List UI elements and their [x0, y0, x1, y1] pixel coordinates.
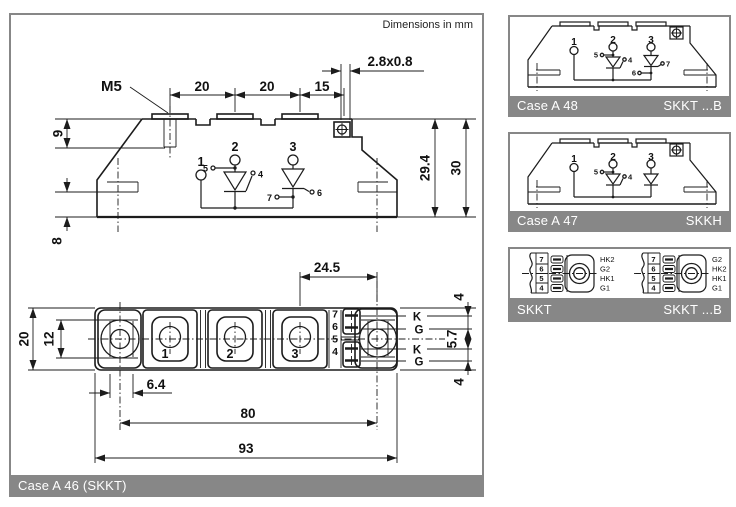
pinout-caption-right: SKKT ...B [663, 302, 722, 317]
pin-5-node [211, 166, 215, 170]
right-mount-hole-outer [360, 320, 397, 357]
dim-12: 12 [42, 331, 57, 346]
module-right-side [352, 119, 397, 217]
pin-4: 4 [651, 284, 656, 293]
label-g1: G1 [600, 284, 610, 293]
module-top-edge [142, 119, 352, 125]
thyristor-2 [282, 169, 304, 187]
terminal-2-node [609, 43, 617, 51]
dim-8: 8 [50, 237, 65, 245]
dim-20a: 20 [194, 79, 209, 94]
dim-20b: 20 [259, 79, 274, 94]
terminal-3-label: 3 [290, 140, 297, 154]
a47-caption-bar: Case A 47 SKKH [510, 211, 729, 230]
module-left-chamfer [97, 119, 142, 217]
circuit-diagram: 1 2 5 4 3 [196, 140, 322, 210]
pin-6-label: 6 [632, 69, 636, 78]
terminal-3-node [647, 43, 655, 51]
dim-245: 24.5 [314, 260, 341, 275]
pin-7-label: 7 [267, 193, 272, 203]
dim-tab: 2.8x0.8 [367, 54, 413, 69]
dim-4a: 4 [452, 293, 467, 301]
thyristor-1-gate [620, 179, 623, 186]
pinout-drawing: 7 6 5 4 HK2 G2 HK1 G1 7 [510, 249, 729, 296]
dim-m5: M5 [101, 78, 122, 95]
pin-5-node [600, 53, 603, 56]
pin-7-label: 7 [666, 60, 670, 69]
pin-6-node [310, 190, 314, 194]
pinout-skkt: 7 6 5 4 HK2 G2 HK1 G1 [522, 253, 615, 293]
pin-5-node [600, 170, 603, 173]
pin-6: 6 [539, 265, 543, 274]
label-hk1: HK1 [712, 274, 727, 283]
label-k2: K [413, 345, 422, 357]
right-flange [358, 182, 397, 192]
right-boss [355, 309, 397, 368]
dim-93: 93 [238, 441, 254, 456]
diode [644, 174, 658, 184]
pin-4-node [623, 58, 626, 61]
pin-4-node [251, 171, 255, 175]
a48-caption-bar: Case A 48 SKKT ...B [510, 96, 729, 115]
dim-top-20: 20 [17, 331, 32, 346]
pin-4-label: 4 [628, 173, 633, 182]
case-a46-drawing: 1 2 5 4 3 [11, 15, 482, 475]
case-a47-panel: 1 2 5 4 3 Case A 47 SKKH [508, 132, 731, 232]
pin-4-label: 4 [258, 170, 263, 180]
terminal-1-node [570, 47, 578, 55]
pin-5: 5 [651, 274, 655, 283]
pin6-digit: 6 [332, 321, 338, 333]
pin-4-node [623, 175, 626, 178]
case-a48-drawing: 1 2 5 4 3 7 [510, 17, 729, 96]
dim-64: 6.4 [147, 377, 166, 392]
pin-4-label: 4 [628, 56, 633, 65]
dim-57: 5.7 [445, 330, 460, 349]
terminal-2-node [609, 160, 617, 168]
thyristor-1-gate [620, 62, 623, 69]
dim-4b: 4 [452, 378, 467, 386]
pin-5-label: 5 [594, 168, 598, 177]
label-k1: K [413, 312, 422, 324]
pin-5-label: 5 [203, 164, 208, 174]
dim-294: 29.4 [418, 154, 433, 181]
pin-7-node [275, 195, 279, 199]
circuit-diagram: 1 2 5 4 3 [570, 152, 658, 198]
a48-caption-right: SKKT ...B [663, 98, 722, 113]
terminal-2-label: 2 [232, 140, 239, 154]
top-view: 1 2 3 7 6 5 4 [17, 260, 476, 463]
thyristor-1-gate [246, 176, 252, 191]
thyristor-2-gate [304, 189, 309, 192]
pin-5: 5 [539, 274, 543, 283]
dim-9: 9 [51, 130, 66, 138]
main-caption-text: Case A 46 (SKKT) [18, 478, 127, 493]
terminal-1-node [570, 164, 578, 172]
pinout-caption-left: SKKT [517, 302, 552, 317]
circuit-diagram: 1 2 5 4 3 7 [570, 35, 670, 81]
faston-tab-cross [336, 123, 349, 136]
terminal-2-node [230, 155, 240, 165]
break-line [642, 253, 644, 293]
right-mount-hole-inner [369, 329, 388, 348]
pinout-caption-bar: SKKT SKKT ...B [510, 298, 729, 320]
break-line [530, 253, 532, 293]
pin-6: 6 [651, 265, 655, 274]
pin-7: 7 [539, 255, 543, 264]
dimensions-note: Dimensions in mm [383, 19, 473, 31]
pin-4: 4 [539, 284, 544, 293]
top-terminal-2-label: 2 [227, 347, 234, 361]
terminal-3-node [288, 155, 298, 165]
a47-caption-right: SKKH [686, 213, 722, 228]
thyristor-1 [224, 172, 246, 190]
main-caption-bar: Case A 46 (SKKT) [11, 475, 482, 495]
case-a47-drawing: 1 2 5 4 3 [510, 134, 729, 211]
m5-leader [130, 87, 168, 113]
label-g1: G [415, 325, 424, 337]
thyristor-2 [644, 56, 658, 66]
pin-7-node [661, 62, 664, 65]
pin4-digit: 4 [332, 346, 338, 358]
case-a48-panel: 1 2 5 4 3 7 [508, 15, 731, 117]
side-view: 1 2 5 4 3 [50, 54, 476, 245]
pin-6-label: 6 [317, 188, 322, 198]
pin7-digit: 7 [332, 309, 338, 321]
case-a46-panel: Dimensions in mm [9, 13, 484, 497]
label-hk2: HK2 [600, 255, 615, 264]
terminal-pad-3 [282, 114, 318, 119]
label-hk1: HK1 [600, 274, 615, 283]
dim-15: 15 [314, 79, 330, 94]
faston-tabs [345, 311, 358, 365]
thyristor-1 [606, 57, 620, 67]
dim-30: 30 [449, 160, 464, 175]
pin-6-node [638, 71, 641, 74]
top-terminal-1-label: 1 [162, 347, 169, 361]
top-terminal-3-label: 3 [292, 347, 299, 361]
pinout-panel: 7 6 5 4 HK2 G2 HK1 G1 7 [508, 247, 731, 322]
pinout-skkt-b: 7 6 5 4 G2 HK2 HK1 G1 [634, 253, 727, 293]
label-hk2: HK2 [712, 265, 727, 274]
left-flange [97, 182, 138, 192]
terminal-3-node [647, 160, 655, 168]
thyristor-1 [606, 174, 620, 184]
a48-caption-left: Case A 48 [517, 98, 578, 113]
pin5-digit: 5 [332, 334, 338, 346]
pin-5-label: 5 [594, 51, 598, 60]
a47-caption-left: Case A 47 [517, 213, 578, 228]
module-outline [528, 22, 716, 91]
module-outline [528, 139, 716, 208]
terminal-pad-2 [217, 114, 253, 119]
label-g1: G1 [712, 284, 722, 293]
dim-80: 80 [240, 406, 255, 421]
label-g2: G2 [600, 265, 610, 274]
pin-7: 7 [651, 255, 655, 264]
label-g2: G2 [712, 255, 722, 264]
label-g2: G [415, 357, 424, 369]
